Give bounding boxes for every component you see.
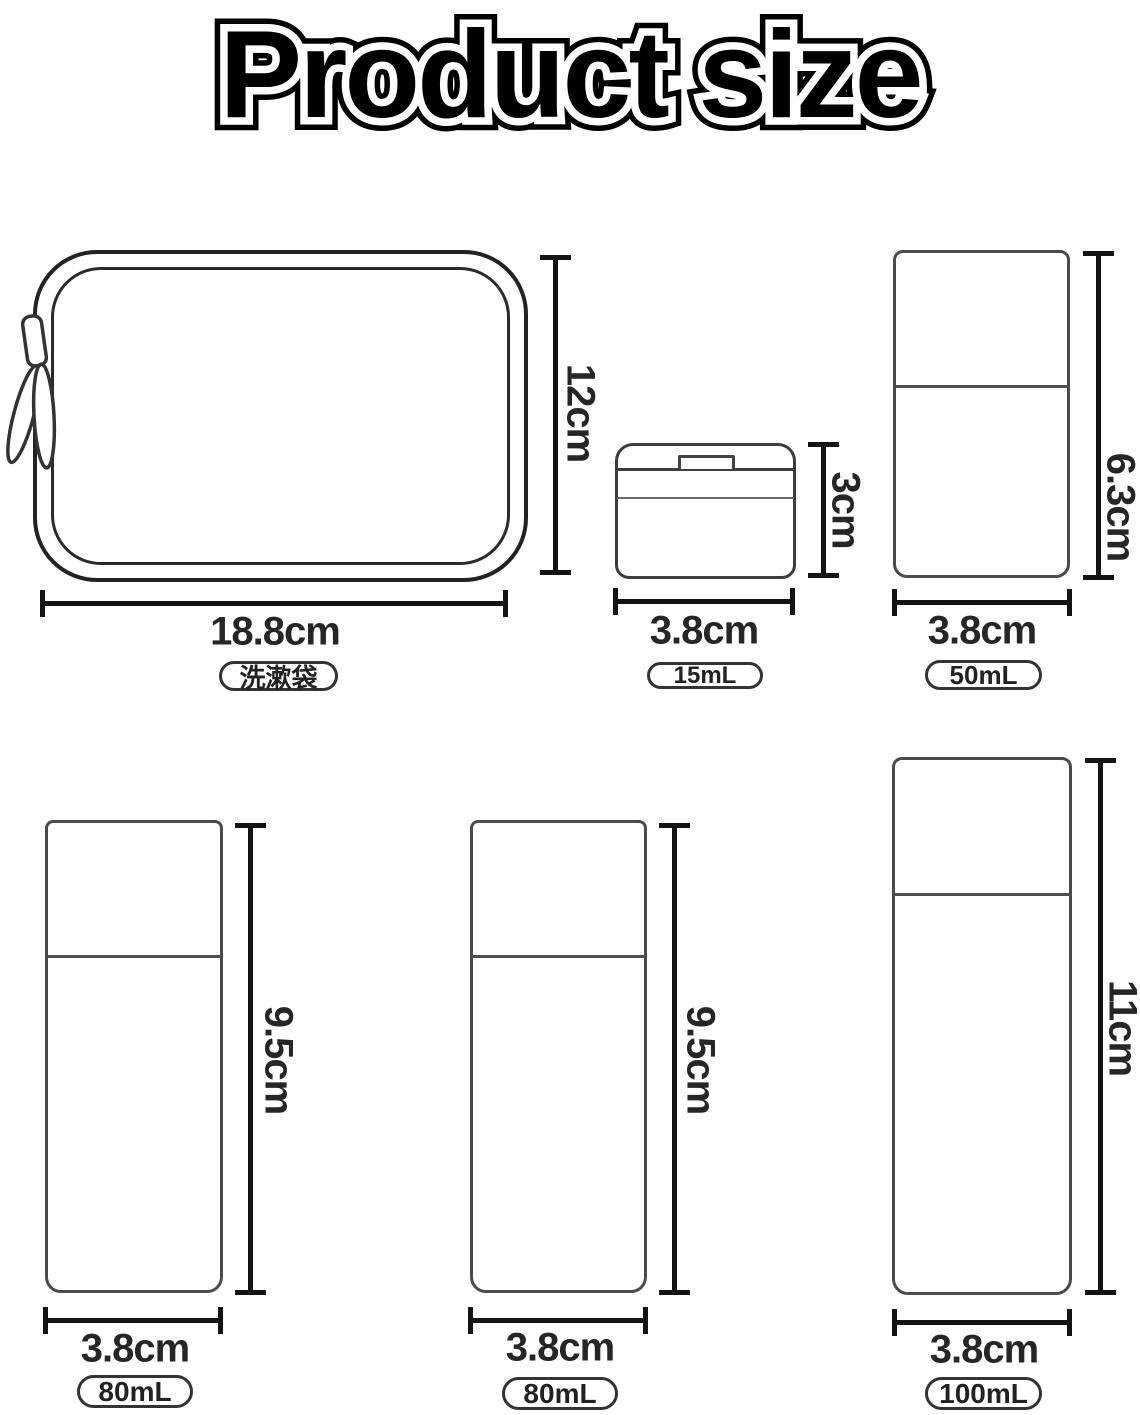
jar-height-label: 3cm xyxy=(823,471,868,548)
bag-name-badge: 洗漱袋 xyxy=(219,661,338,691)
jar-lid-tab xyxy=(678,455,735,469)
bottle-100ml-cap-line xyxy=(894,893,1070,896)
bottle-100ml-outline xyxy=(892,757,1072,1295)
bottle-80ml-left-height-label: 9.5cm xyxy=(256,1006,301,1114)
bottle-80ml-left-height-dimension-line xyxy=(248,823,253,1295)
bottle-80ml-mid-volume-badge: 80mL xyxy=(502,1377,618,1410)
zipper-pull-icon xyxy=(0,296,72,482)
bottle-80ml-mid-outline xyxy=(470,820,647,1293)
bottle-80ml-mid-volume-text: 80mL xyxy=(523,1378,596,1410)
bottle-50ml-volume-badge: 50mL xyxy=(925,660,1042,690)
bottle-100ml-width-label: 3.8cm xyxy=(930,1328,1038,1373)
product-size-diagram: Product size Product size Product size 1… xyxy=(0,0,1140,1415)
bottle-50ml-width-dimension-line xyxy=(892,600,1072,605)
bag-width-label: 18.8cm xyxy=(210,610,340,655)
jar-rim-line xyxy=(617,497,794,499)
bottle-100ml-height-label: 11cm xyxy=(1100,980,1140,1076)
bottle-50ml-cap-line xyxy=(895,385,1068,388)
page-title: Product size Product size Product size xyxy=(0,4,1140,174)
bottle-50ml-height-label: 6.3cm xyxy=(1098,453,1140,561)
jar-volume-text: 15mL xyxy=(674,662,737,690)
bag-name-text: 洗漱袋 xyxy=(239,658,317,695)
bottle-50ml-outline xyxy=(893,250,1070,578)
bottle-80ml-left-volume-text: 80mL xyxy=(98,1376,171,1408)
bottle-100ml-volume-badge: 100mL xyxy=(925,1377,1042,1410)
page-title-text: Product size xyxy=(0,4,1140,146)
jar-width-label: 3.8cm xyxy=(650,609,758,654)
bottle-50ml-volume-text: 50mL xyxy=(950,660,1018,691)
bottle-100ml-width-dimension-line xyxy=(892,1320,1072,1325)
bag-height-label: 12cm xyxy=(558,364,603,462)
bottle-80ml-left-volume-badge: 80mL xyxy=(77,1375,193,1408)
bottle-80ml-left-cap-line xyxy=(47,955,221,958)
bottle-50ml-width-label: 3.8cm xyxy=(928,609,1036,654)
jar-volume-badge: 15mL xyxy=(647,662,763,689)
bottle-80ml-left-width-dimension-line xyxy=(43,1318,223,1323)
bottle-80ml-mid-cap-line xyxy=(472,955,645,958)
bottle-80ml-mid-width-label: 3.8cm xyxy=(506,1326,614,1371)
jar-15ml-outline xyxy=(615,443,796,579)
bottle-100ml-volume-text: 100mL xyxy=(939,1378,1028,1410)
bottle-80ml-left-outline xyxy=(45,820,223,1293)
bag-width-dimension-line xyxy=(40,601,508,606)
jar-width-dimension-line xyxy=(613,599,795,604)
bottle-80ml-left-width-label: 3.8cm xyxy=(81,1327,189,1372)
bottle-80ml-mid-height-label: 9.5cm xyxy=(678,1006,723,1114)
bottle-80ml-mid-width-dimension-line xyxy=(468,1318,648,1323)
bottle-80ml-mid-height-dimension-line xyxy=(672,823,677,1295)
toiletry-bag-inner-outline xyxy=(51,267,510,565)
